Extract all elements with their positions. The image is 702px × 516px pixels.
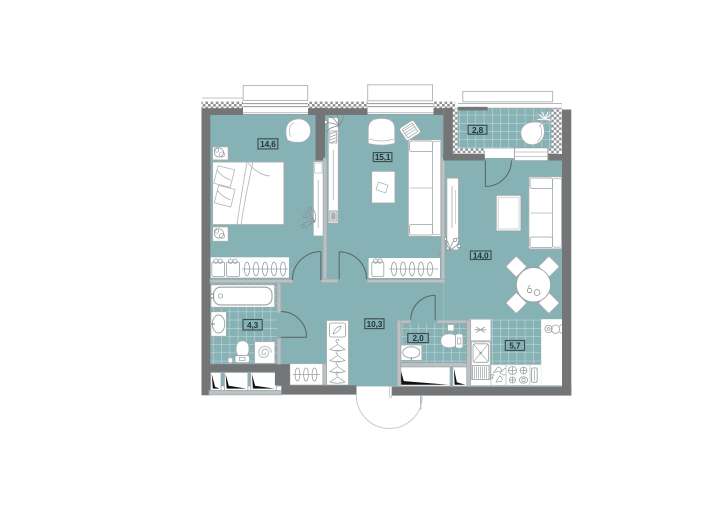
svg-text:4,3: 4,3 — [247, 320, 259, 330]
svg-text:14,6: 14,6 — [260, 139, 276, 149]
svg-text:15,1: 15,1 — [375, 152, 391, 162]
svg-text:10,3: 10,3 — [367, 319, 383, 329]
svg-text:2,0: 2,0 — [412, 333, 424, 343]
svg-text:5,7: 5,7 — [509, 341, 521, 351]
svg-text:14,0: 14,0 — [473, 250, 489, 260]
svg-text:2,8: 2,8 — [472, 125, 484, 135]
